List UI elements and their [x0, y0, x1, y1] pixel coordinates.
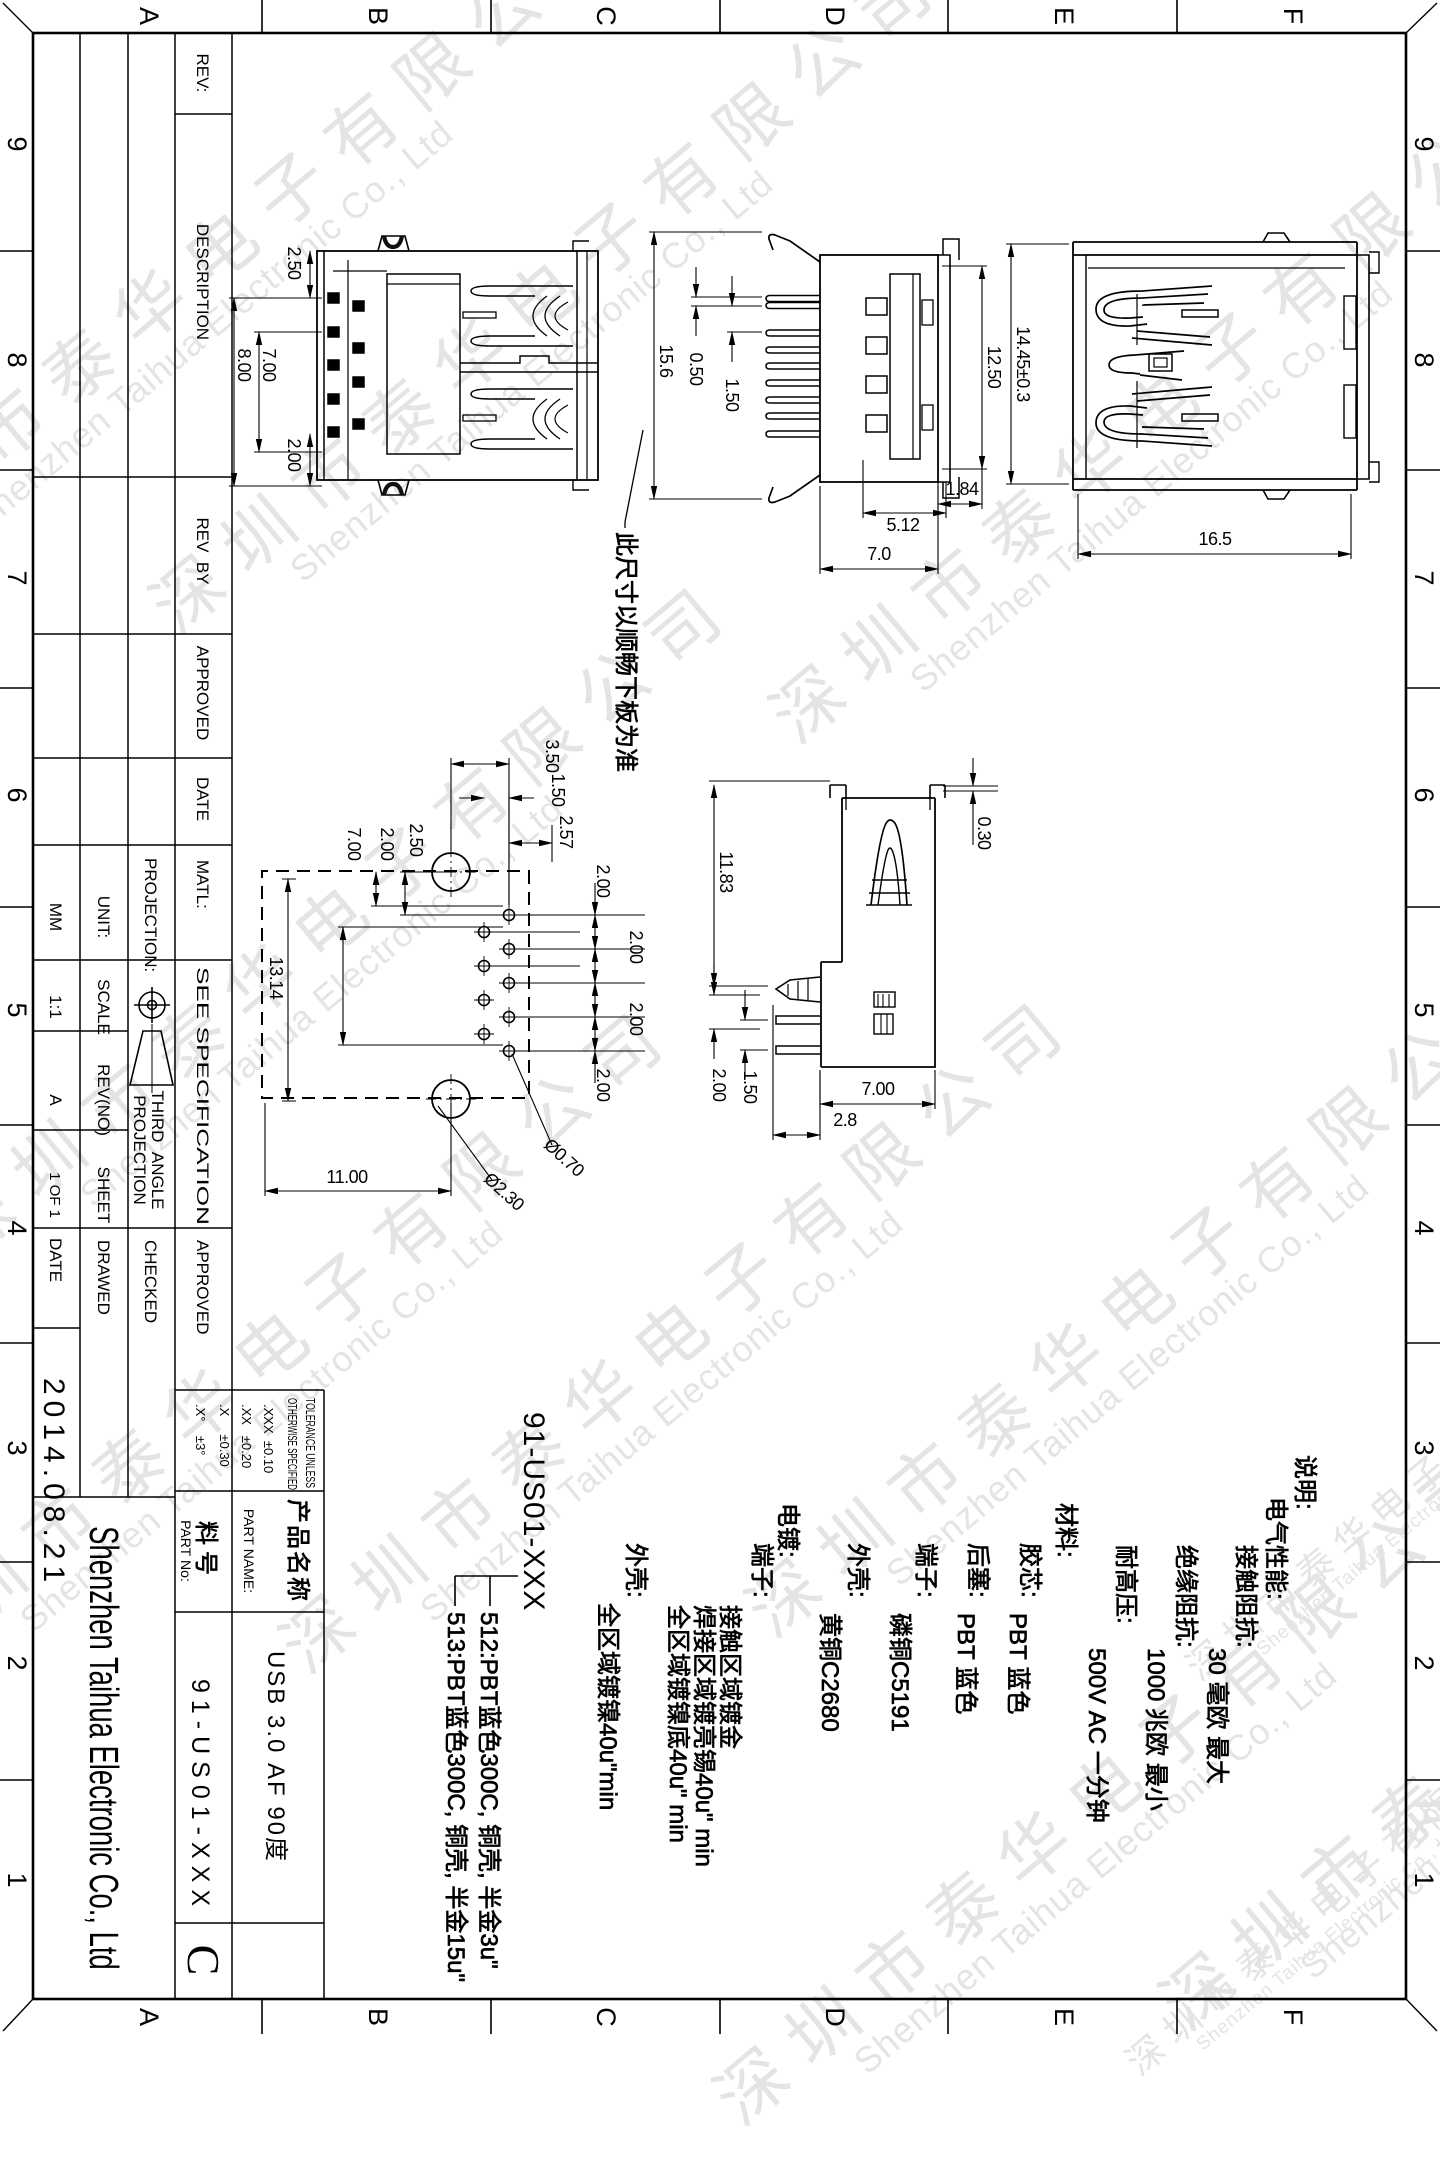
svg-text:后塞:: 后塞: — [964, 1543, 991, 1598]
svg-text:PROJECTION:: PROJECTION: — [141, 858, 160, 972]
svg-text:REV:: REV: — [193, 53, 212, 92]
svg-text:5.12: 5.12 — [886, 515, 920, 535]
svg-text:黄铜C2680: 黄铜C2680 — [816, 1613, 843, 1732]
svg-text:DRAWED: DRAWED — [94, 1240, 113, 1315]
svg-text:1.50: 1.50 — [548, 773, 568, 807]
svg-text:F: F — [1278, 8, 1308, 25]
svg-text:APPROVED: APPROVED — [193, 1240, 212, 1334]
svg-text:0.50: 0.50 — [686, 352, 706, 386]
svg-text:7: 7 — [1409, 570, 1439, 585]
svg-text:2.00: 2.00 — [593, 864, 613, 898]
svg-text:SCALE: SCALE — [94, 979, 113, 1035]
svg-text:PART No:: PART No: — [178, 1520, 194, 1582]
svg-text:2: 2 — [1409, 1655, 1439, 1670]
svg-text:4: 4 — [2, 1220, 32, 1235]
svg-text:Shenzhen Taihua Electronic Co.: Shenzhen Taihua Electronic Co., Ltd — [81, 1526, 127, 1970]
svg-text:绝缘阻抗:: 绝缘阻抗: — [1172, 1545, 1199, 1648]
svg-text:PROJECTION: PROJECTION — [130, 1095, 149, 1205]
svg-text:胶芯:: 胶芯: — [1016, 1543, 1043, 1598]
svg-text:1: 1 — [2, 1872, 32, 1887]
svg-text:2.00: 2.00 — [626, 1002, 646, 1036]
svg-text:DATE: DATE — [193, 777, 212, 821]
svg-text:2.50: 2.50 — [406, 823, 426, 857]
svg-text:1:1: 1:1 — [46, 995, 65, 1019]
svg-text:.X° ±3°: .X° ±3° — [193, 1404, 208, 1456]
svg-text:全区域镀镍底40u" min: 全区域镀镍底40u" min — [664, 1605, 691, 1843]
svg-text:8: 8 — [1409, 352, 1439, 367]
svg-text:接触阻抗:: 接触阻抗: — [1232, 1545, 1259, 1648]
svg-text:2.00: 2.00 — [709, 1068, 729, 1102]
svg-text:全区域镀镍40u"min: 全区域镀镍40u"min — [594, 1603, 621, 1810]
svg-text:C: C — [178, 1945, 229, 1976]
svg-text:焊接区域镀亮锡40u" min: 焊接区域镀亮锡40u" min — [690, 1605, 717, 1867]
svg-text:7.00: 7.00 — [861, 1079, 895, 1099]
svg-text:2.00: 2.00 — [284, 438, 304, 472]
svg-text:A: A — [134, 2008, 164, 2026]
svg-text:1: 1 — [1409, 1872, 1439, 1887]
svg-text:MATL:: MATL: — [193, 860, 212, 909]
svg-text:D: D — [820, 2007, 850, 2027]
svg-text:DATE: DATE — [46, 1238, 65, 1282]
svg-text:8: 8 — [2, 352, 32, 367]
svg-text:.X ±0.30: .X ±0.30 — [217, 1404, 232, 1467]
svg-text:外壳:: 外壳: — [844, 1543, 871, 1598]
svg-text:2.57: 2.57 — [556, 815, 576, 849]
svg-text:REV BY: REV BY — [193, 517, 212, 584]
svg-text:料号: 料号 — [192, 1521, 219, 1581]
svg-text:5: 5 — [2, 1002, 32, 1017]
svg-text:TOLERANCE UNLESS: TOLERANCE UNLESS — [303, 1398, 318, 1488]
svg-text:91-US01-XXX: 91-US01-XXX — [186, 1679, 214, 1913]
svg-text:6: 6 — [1409, 787, 1439, 802]
svg-text:材料:: 材料: — [1052, 1503, 1079, 1558]
svg-text:MM: MM — [46, 903, 65, 931]
svg-text:8.00: 8.00 — [234, 348, 254, 382]
svg-text:磷铜C5191: 磷铜C5191 — [886, 1613, 913, 1732]
svg-text:2.00: 2.00 — [377, 827, 397, 861]
svg-text:SEE SPECIFICATION: SEE SPECIFICATION — [193, 967, 212, 1225]
svg-text:电镀:: 电镀: — [774, 1503, 801, 1558]
svg-text:3: 3 — [1409, 1440, 1439, 1455]
svg-text:D: D — [820, 6, 850, 26]
svg-text:9: 9 — [1409, 136, 1439, 151]
svg-text:0.30: 0.30 — [974, 816, 994, 850]
svg-text:SHEET: SHEET — [94, 1167, 113, 1224]
svg-text:5: 5 — [1409, 1002, 1439, 1017]
svg-text:2.8: 2.8 — [833, 1110, 857, 1130]
svg-text:9: 9 — [2, 136, 32, 151]
svg-text:4: 4 — [1409, 1220, 1439, 1235]
svg-text:Ø2.30: Ø2.30 — [480, 1169, 528, 1215]
svg-text:500V AC 一分钟: 500V AC 一分钟 — [1083, 1648, 1110, 1823]
svg-text:PBT 蓝色: PBT 蓝色 — [952, 1613, 979, 1714]
svg-text:Ø0.70: Ø0.70 — [540, 1135, 588, 1181]
svg-text:7.00: 7.00 — [344, 827, 364, 861]
svg-text:512:PBT蓝色300C, 铜壳, 半金3u": 512:PBT蓝色300C, 铜壳, 半金3u" — [475, 1612, 502, 1969]
svg-text:PART NAME:: PART NAME: — [241, 1509, 257, 1593]
svg-text:16.5: 16.5 — [1198, 529, 1232, 549]
svg-text:F: F — [1278, 2009, 1308, 2026]
svg-text:UNIT:: UNIT: — [94, 896, 113, 939]
svg-text:电气性能:: 电气性能: — [1262, 1497, 1289, 1600]
svg-text:1.50: 1.50 — [740, 1070, 760, 1104]
svg-text:14.45±0.3: 14.45±0.3 — [1013, 326, 1033, 402]
svg-text:11.00: 11.00 — [326, 1167, 368, 1187]
svg-text:B: B — [363, 7, 393, 25]
svg-text:3.50: 3.50 — [542, 739, 562, 773]
svg-text:PBT 蓝色: PBT 蓝色 — [1004, 1613, 1031, 1714]
svg-text:30 毫欧 最大: 30 毫欧 最大 — [1203, 1648, 1230, 1784]
svg-text:3: 3 — [2, 1440, 32, 1455]
svg-text:THIRD ANGLE: THIRD ANGLE — [148, 1090, 167, 1209]
svg-text:1.84: 1.84 — [945, 479, 979, 499]
svg-text:7.00: 7.00 — [259, 348, 279, 382]
svg-text:C: C — [591, 6, 621, 26]
svg-text:此尺寸以顺畅下板为准: 此尺寸以顺畅下板为准 — [612, 532, 639, 772]
svg-text:15.6: 15.6 — [656, 344, 676, 378]
svg-text:DESCRIPTION: DESCRIPTION — [193, 224, 212, 340]
svg-text:2.00: 2.00 — [626, 930, 646, 964]
svg-text:.XX ±0.20: .XX ±0.20 — [239, 1404, 254, 1468]
svg-text:接触区域镀金: 接触区域镀金 — [716, 1605, 743, 1749]
svg-text:CHECKED: CHECKED — [141, 1240, 160, 1323]
svg-text:12.50: 12.50 — [984, 346, 1004, 389]
svg-text:USB 3.0 AF 90度: USB 3.0 AF 90度 — [262, 1651, 289, 1863]
svg-text:2.00: 2.00 — [593, 1068, 613, 1102]
svg-text:2: 2 — [2, 1655, 32, 1670]
svg-text:.XXX ±0.10: .XXX ±0.10 — [261, 1404, 276, 1473]
svg-text:REV(NO): REV(NO) — [94, 1064, 113, 1136]
svg-text:E: E — [1049, 7, 1079, 25]
svg-text:513:PBT蓝色300C, 铜壳, 半金15u": 513:PBT蓝色300C, 铜壳, 半金15u" — [442, 1612, 469, 1982]
svg-text:1.50: 1.50 — [722, 378, 742, 412]
svg-text:A: A — [46, 1094, 65, 1106]
svg-text:C: C — [591, 2007, 621, 2027]
svg-text:7: 7 — [2, 570, 32, 585]
svg-text:A: A — [134, 7, 164, 25]
svg-text:7.0: 7.0 — [867, 544, 891, 564]
svg-text:说明:: 说明: — [1291, 1455, 1318, 1510]
svg-text:2.50: 2.50 — [284, 246, 304, 280]
svg-text:13.14: 13.14 — [266, 957, 286, 1000]
svg-text:2014.08.21: 2014.08.21 — [37, 1378, 70, 1588]
svg-text:外壳:: 外壳: — [622, 1543, 649, 1598]
svg-text:E: E — [1049, 2008, 1079, 2026]
svg-text:端子:: 端子: — [912, 1543, 939, 1598]
svg-text:端子:: 端子: — [748, 1543, 775, 1598]
svg-text:B: B — [363, 2008, 393, 2026]
svg-text:91-US01-XXX: 91-US01-XXX — [517, 1412, 550, 1611]
svg-text:APPROVED: APPROVED — [193, 646, 212, 740]
svg-text:6: 6 — [2, 787, 32, 802]
svg-text:11.83: 11.83 — [716, 851, 736, 893]
svg-text:1 OF 1: 1 OF 1 — [46, 1172, 63, 1218]
svg-text:产品名称: 产品名称 — [284, 1499, 311, 1603]
svg-text:耐高压:: 耐高压: — [1112, 1545, 1139, 1624]
svg-text:1000 兆欧 最小: 1000 兆欧 最小 — [1142, 1648, 1169, 1811]
svg-text:OTHERWISE SPECIFIED: OTHERWISE SPECIFIED — [285, 1398, 300, 1490]
